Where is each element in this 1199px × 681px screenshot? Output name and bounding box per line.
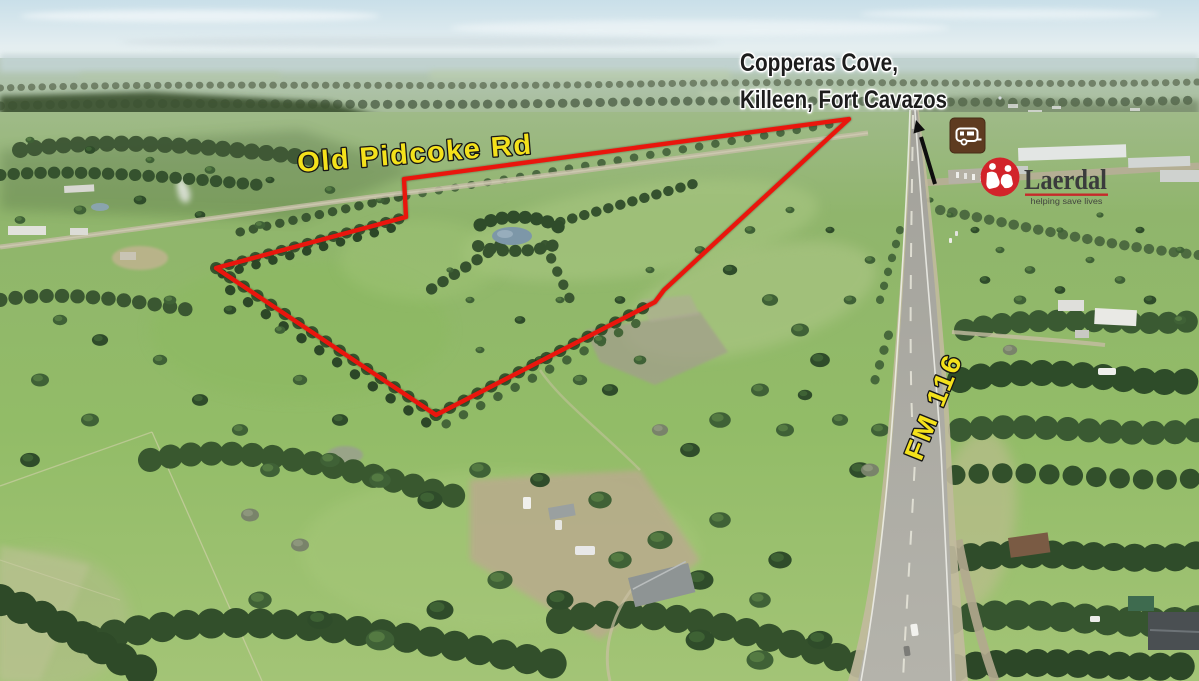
- aerial-photo-canvas: Old Pidcoke Rd FM 116 Copperas Cove, Kil…: [0, 0, 1199, 681]
- rv-trailer: [1098, 368, 1116, 375]
- pasture-ground: [0, 112, 1199, 681]
- destination-label-line2: Killeen, Fort Cavazos: [740, 86, 947, 114]
- sky: [0, 0, 1199, 62]
- destination-label-line1: Copperas Cove,: [740, 49, 898, 77]
- laerdal-wordmark: Laerdal: [1024, 164, 1107, 196]
- aerial-photo: Old Pidcoke Rd FM 116 Copperas Cove, Kil…: [0, 0, 1199, 681]
- shed-roof: [1128, 596, 1154, 611]
- rv-sign-icon: [950, 118, 985, 153]
- farm-pond: [91, 203, 109, 211]
- laerdal-tagline: helping save lives: [1031, 196, 1103, 206]
- rv-trailer: [575, 546, 595, 555]
- laerdal-logo-icon: [981, 158, 1020, 197]
